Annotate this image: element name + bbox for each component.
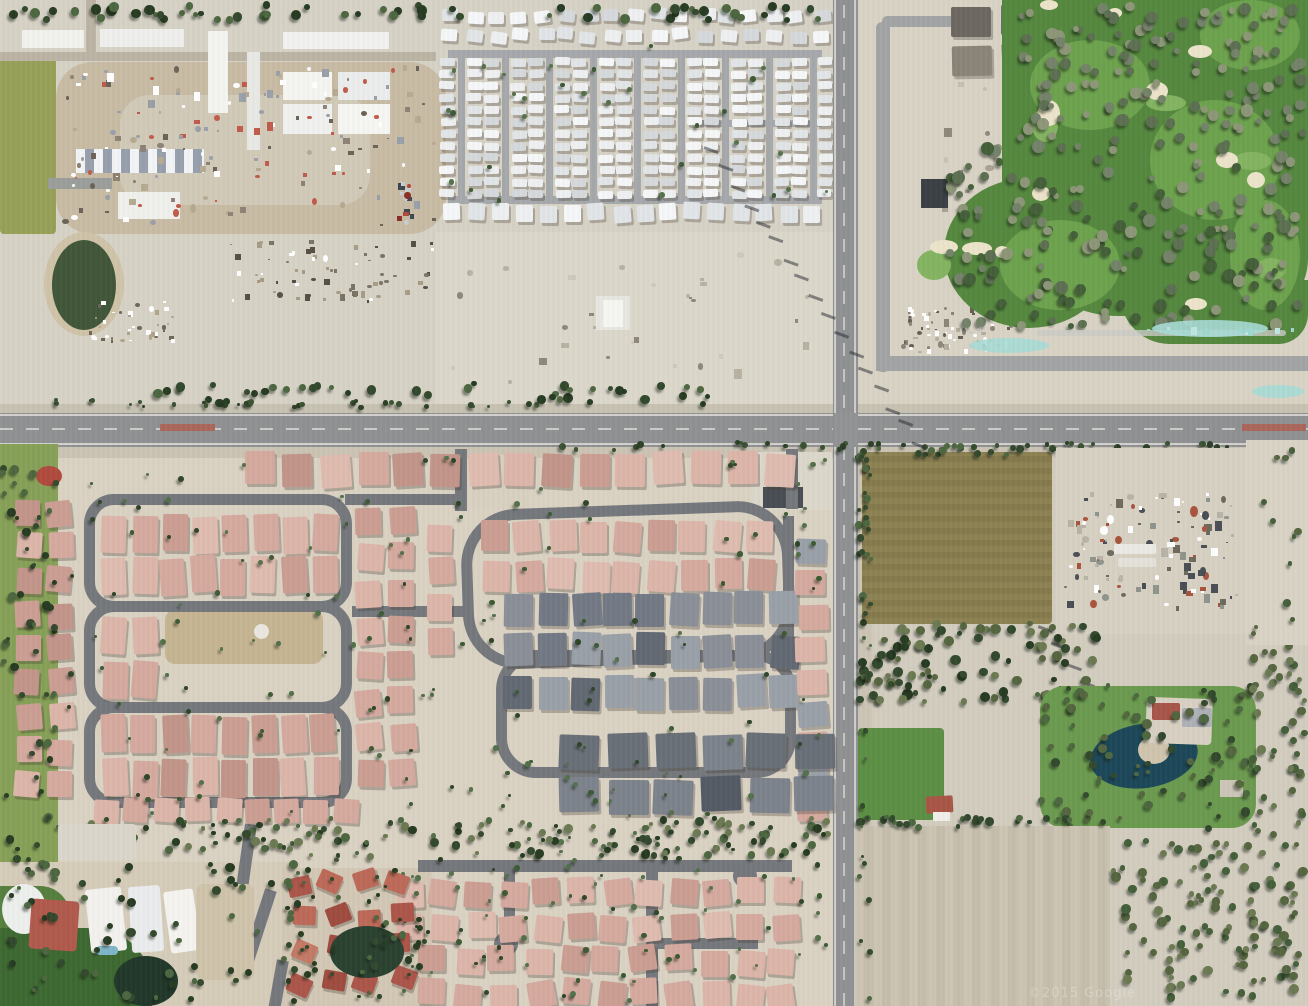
image-grain	[0, 0, 1308, 1006]
satellite-map[interactable]: ©2015 Google	[0, 0, 1308, 1006]
